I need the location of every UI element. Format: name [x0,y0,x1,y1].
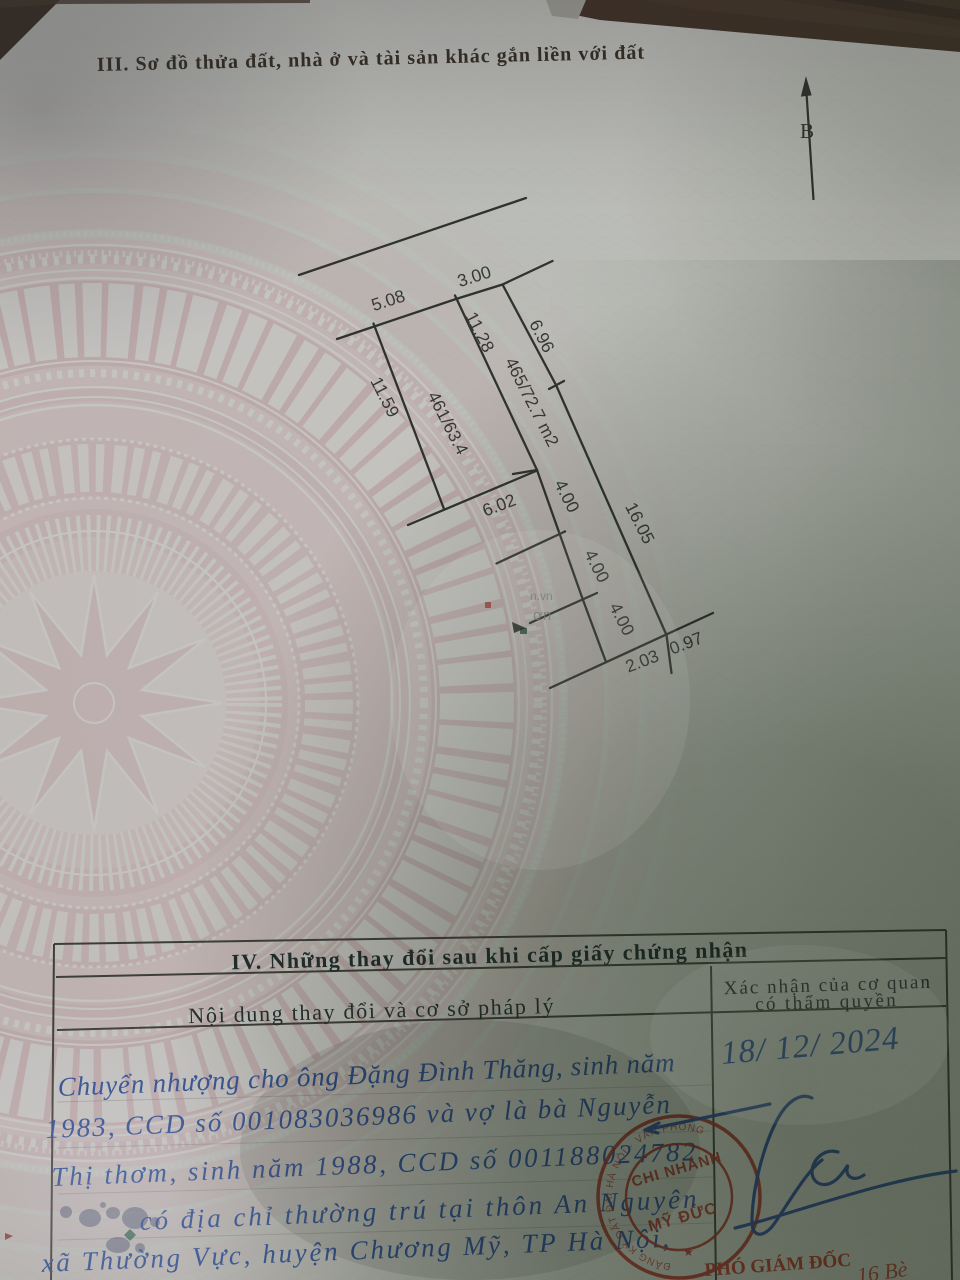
svg-text:xã Thường Vực, huyện Chương Mỹ: xã Thường Vực, huyện Chương Mỹ, TP Hà Nộ… [40,1223,672,1278]
svg-text:★: ★ [683,1245,694,1259]
svg-text:PHÓ GIÁM ĐỐC: PHÓ GIÁM ĐỐC [704,1249,852,1280]
svg-text:Thị thơm, sinh năm 1988, CCD s: Thị thơm, sinh năm 1988, CCD số 00118802… [51,1136,698,1192]
svg-text:16 Bè: 16 Bè [855,1256,909,1280]
svg-text:18/ 12/ 2024: 18/ 12/ 2024 [720,1021,901,1072]
